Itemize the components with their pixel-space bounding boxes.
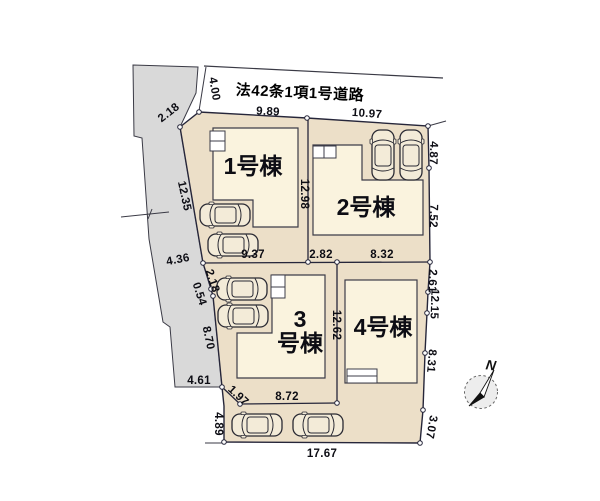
site-plan: 法42条1項1号道路 N 4.002.189.8910.974.8712.351…: [0, 0, 600, 501]
road-edge-extension: [428, 121, 446, 126]
car-lot3-a: [217, 276, 267, 302]
car-lot2-b: [398, 130, 424, 180]
porch-building-4: [347, 369, 377, 383]
car-lot1-a: [200, 202, 250, 228]
compass: [465, 370, 498, 409]
road-width-line: [199, 67, 206, 111]
car-lot3-b: [218, 303, 268, 329]
site-plan-svg: [0, 0, 600, 501]
building-4: [345, 280, 417, 383]
car-lot1-b: [208, 232, 258, 258]
porch-building-3: [271, 275, 285, 298]
porch-building-1: [210, 131, 225, 151]
car-bottom-a: [232, 412, 282, 438]
porch-building-2: [313, 146, 336, 158]
car-bottom-b: [293, 412, 343, 438]
road-far-edge: [204, 66, 443, 78]
car-lot2-a: [370, 130, 396, 180]
